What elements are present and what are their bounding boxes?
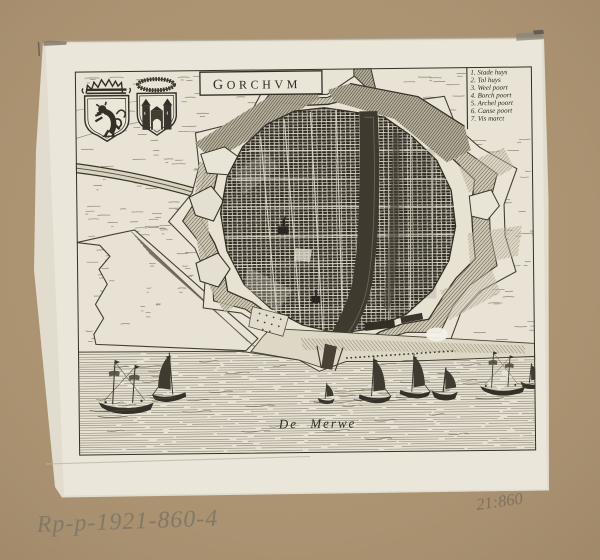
svg-text:De Merwe: De Merwe: [278, 415, 357, 431]
svg-text:7. Vis marct: 7. Vis marct: [471, 114, 505, 122]
svg-text:GORCHVM: GORCHVM: [213, 77, 301, 93]
